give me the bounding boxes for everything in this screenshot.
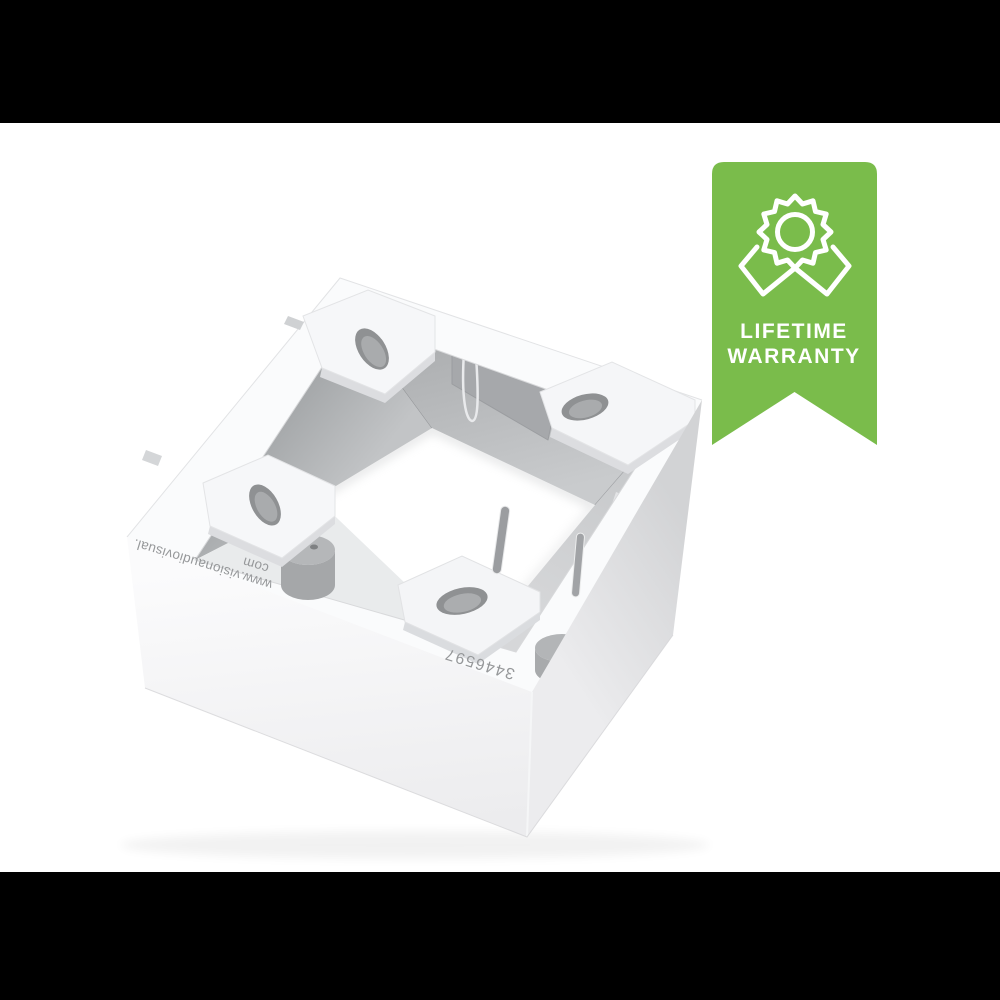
- rim-notch-left: [142, 450, 162, 466]
- rim-notch-rear: [284, 316, 304, 330]
- ribbon-banner: [712, 162, 877, 445]
- product-image: www.visionaudiovisual. com 3446597 LIFET…: [0, 0, 1000, 1000]
- product-shadow: [120, 831, 710, 859]
- boss-pilot-hole: [310, 545, 318, 550]
- warranty-text-line2: WARRANTY: [727, 345, 860, 368]
- back-box-illustration: www.visionaudiovisual. com 3446597 LIFET…: [0, 0, 1000, 1000]
- warranty-ribbon: LIFETIME WARRANTY: [712, 162, 877, 445]
- letterbox-bottom-bar: [0, 872, 1000, 1000]
- warranty-text-line1: LIFETIME: [740, 320, 848, 343]
